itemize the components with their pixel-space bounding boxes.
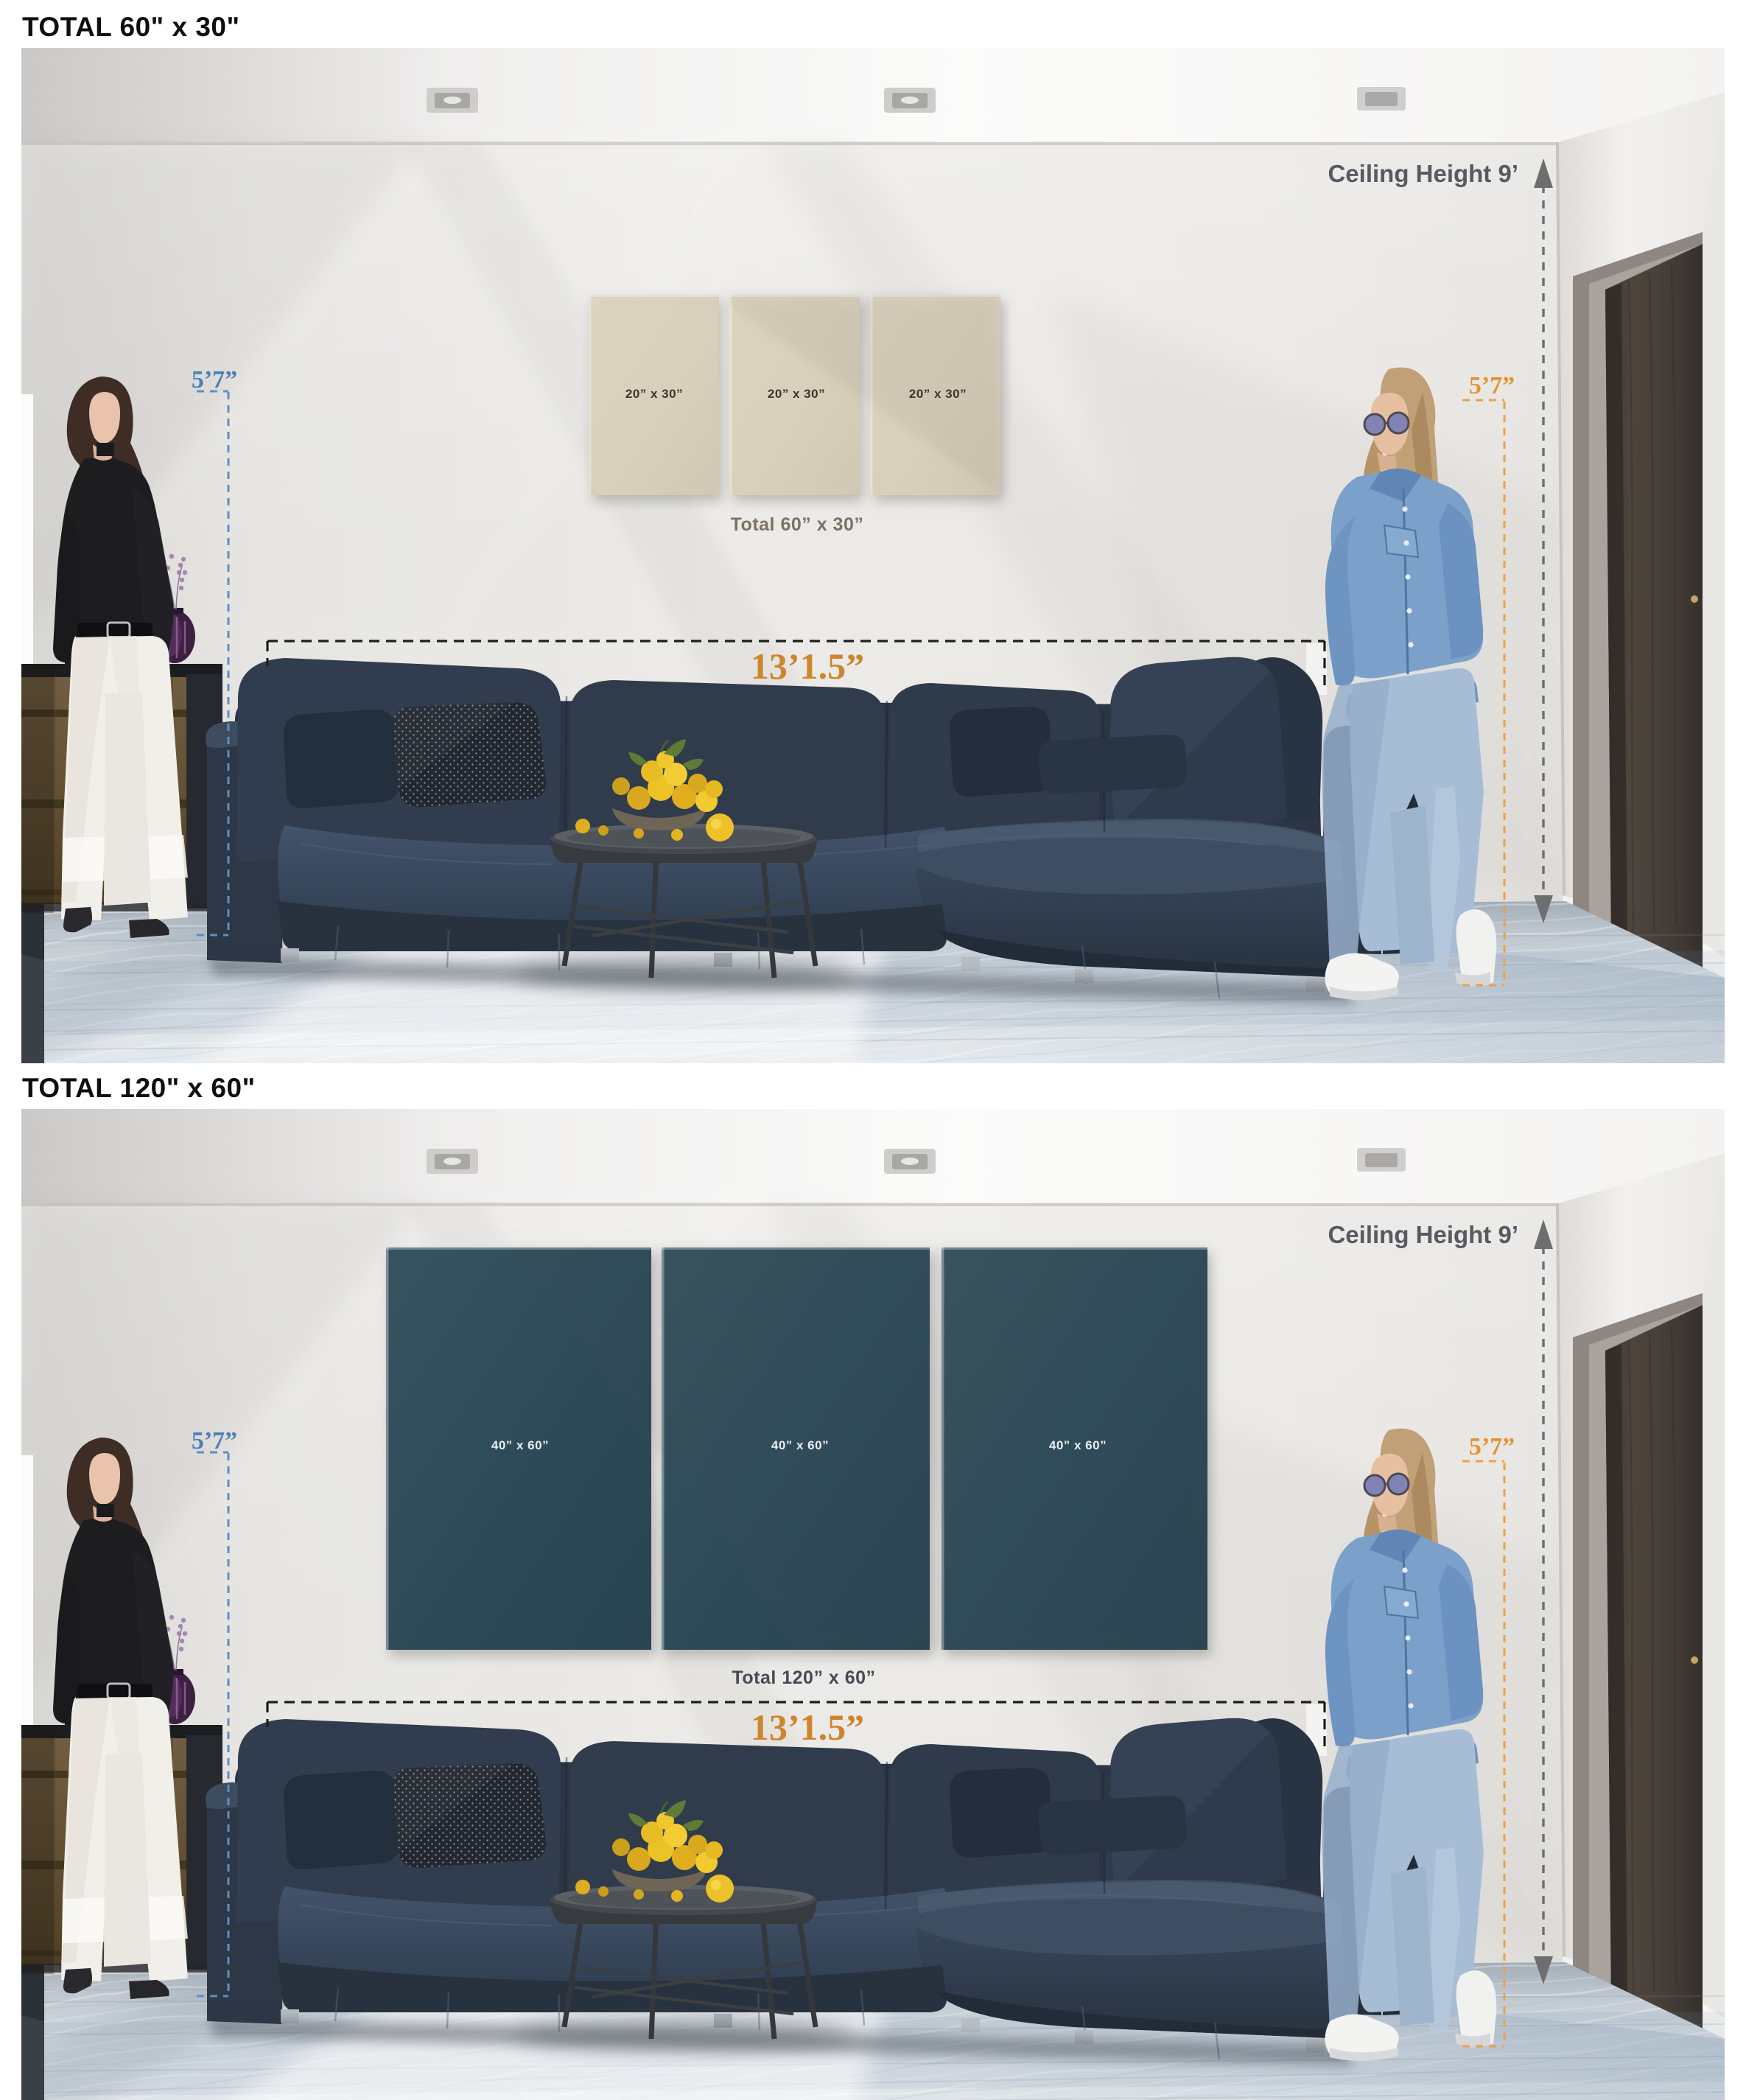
svg-text:5’7”: 5’7”: [1469, 372, 1515, 399]
svg-text:Ceiling Height 9’: Ceiling Height 9’: [1328, 160, 1518, 187]
svg-text:40” x 60”: 40” x 60”: [771, 1438, 829, 1452]
svg-text:20” x 30”: 20” x 30”: [625, 387, 683, 401]
svg-text:20” x 30”: 20” x 30”: [909, 387, 967, 401]
svg-text:Total 120” x 60”: Total 120” x 60”: [732, 1667, 875, 1688]
svg-text:13’1.5”: 13’1.5”: [751, 645, 864, 687]
svg-text:5’7”: 5’7”: [192, 366, 237, 393]
svg-text:40” x 60”: 40” x 60”: [491, 1438, 549, 1452]
svg-text:5’7”: 5’7”: [192, 1427, 237, 1455]
svg-text:13’1.5”: 13’1.5”: [751, 1707, 864, 1748]
svg-text:40” x 60”: 40” x 60”: [1049, 1438, 1107, 1452]
svg-text:5’7”: 5’7”: [1469, 1433, 1515, 1460]
svg-text:Total 60” x 30”: Total 60” x 30”: [731, 514, 864, 535]
svg-text:Ceiling Height 9’: Ceiling Height 9’: [1328, 1221, 1518, 1248]
svg-text:20” x 30”: 20” x 30”: [768, 387, 825, 401]
